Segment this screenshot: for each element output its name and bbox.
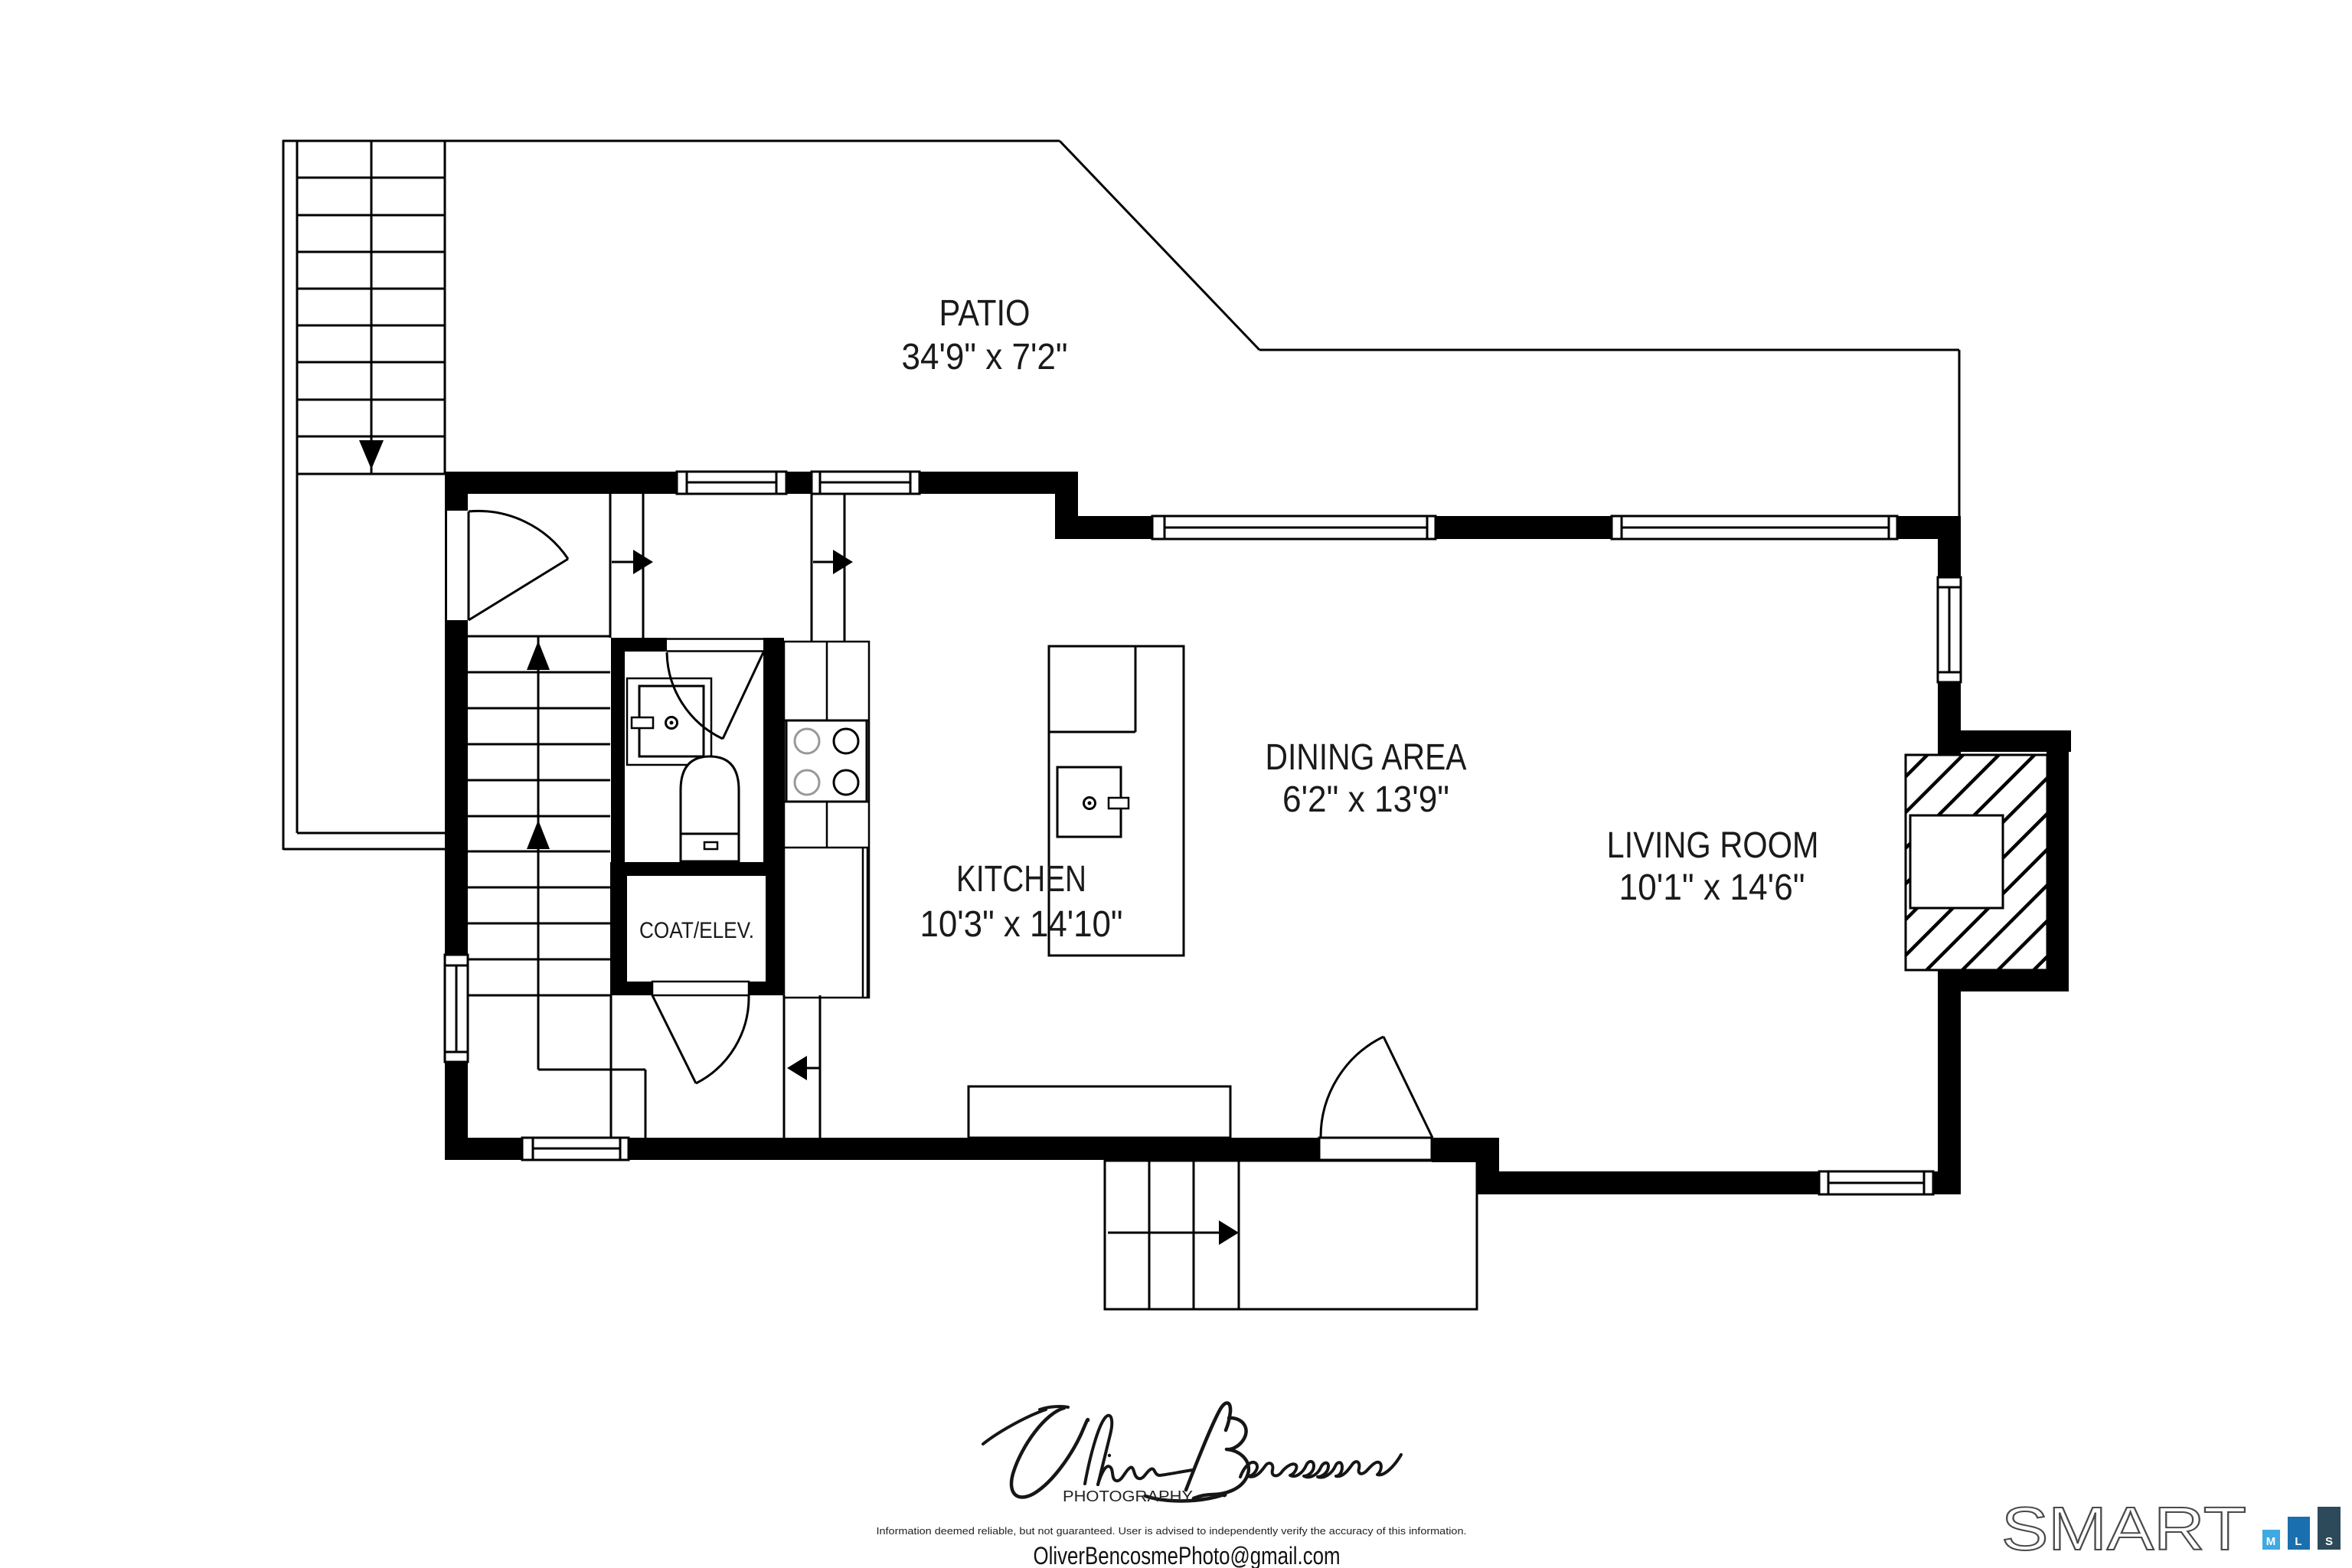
svg-text:M: M xyxy=(2266,1535,2276,1548)
svg-text:Information deemed reliable, b: Information deemed reliable, but not gua… xyxy=(877,1526,1467,1537)
svg-text:COAT/ELEV.: COAT/ELEV. xyxy=(639,918,754,943)
svg-text:DINING AREA: DINING AREA xyxy=(1266,737,1467,778)
svg-text:L: L xyxy=(2295,1535,2301,1548)
svg-text:34'9" x 7'2": 34'9" x 7'2" xyxy=(902,337,1068,377)
svg-text:S: S xyxy=(2325,1535,2333,1548)
svg-text:SMART: SMART xyxy=(2001,1494,2246,1563)
svg-text:PHOTOGRAPHY: PHOTOGRAPHY xyxy=(1063,1488,1193,1505)
svg-text:PATIO: PATIO xyxy=(939,293,1031,334)
svg-text:6'2" x 13'9": 6'2" x 13'9" xyxy=(1282,779,1449,820)
svg-text:OliverBencosmePhoto@gmail.com: OliverBencosmePhoto@gmail.com xyxy=(1034,1542,1341,1568)
svg-text:LIVING ROOM: LIVING ROOM xyxy=(1607,825,1819,866)
svg-text:10'1" x 14'6": 10'1" x 14'6" xyxy=(1619,867,1805,908)
svg-text:10'3" x 14'10": 10'3" x 14'10" xyxy=(920,904,1123,945)
svg-text:KITCHEN: KITCHEN xyxy=(956,859,1086,900)
